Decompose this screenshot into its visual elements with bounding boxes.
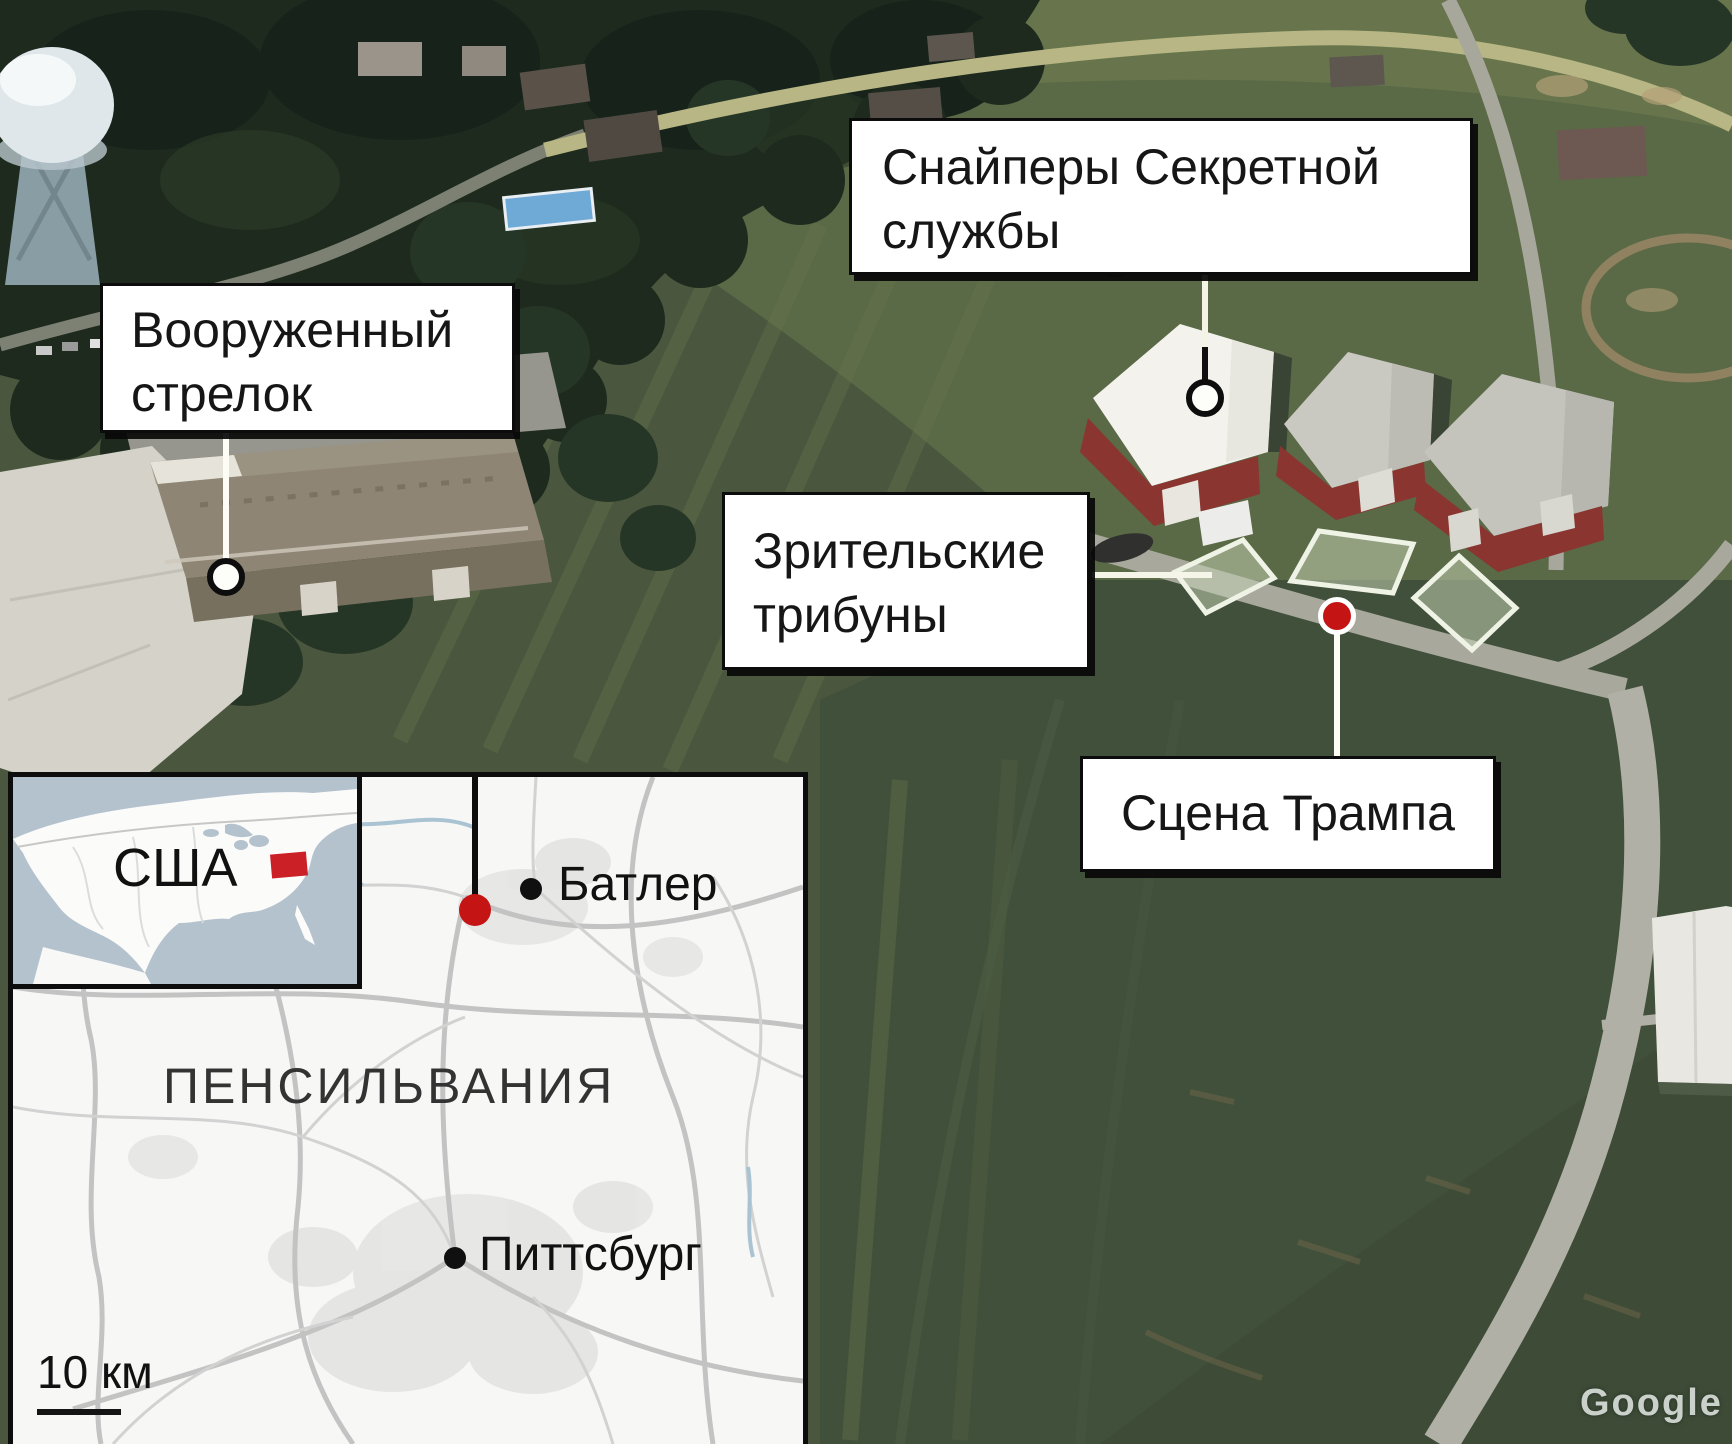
shooter-label: Вооруженный стрелок: [100, 283, 515, 433]
butler-label: Батлер: [558, 857, 717, 912]
scale-bar: [37, 1409, 121, 1415]
snipers-label-line1: Снайперы Секретной: [882, 135, 1470, 199]
stands-label-line1: Зрительские: [753, 519, 1087, 583]
stands-label: Зрительские трибуны: [722, 492, 1090, 670]
snipers-connector-lower: [1202, 347, 1208, 381]
butler-dot: [520, 878, 542, 900]
stands-label-line2: трибуны: [753, 583, 1087, 647]
stands-connector: [1092, 572, 1212, 578]
white-building-right: [1652, 906, 1732, 1096]
shooter-label-line2: стрелок: [131, 362, 512, 426]
shooter-connector: [223, 432, 229, 560]
pennsylvania-highlight: [270, 851, 308, 878]
inset-map-pennsylvania: США Батлер ПЕНСИЛЬВАНИЯ Питтсбург 10 км: [8, 772, 808, 1444]
stage-marker: [1318, 597, 1356, 635]
shooter-marker: [207, 558, 245, 596]
scale-label: 10 км: [37, 1345, 153, 1399]
state-label: ПЕНСИЛЬВАНИЯ: [163, 1057, 615, 1115]
snipers-marker: [1186, 379, 1224, 417]
snipers-label: Снайперы Секретной службы: [849, 118, 1473, 275]
annotated-aerial-graphic: Снайперы Секретной службы Вооруженный ст…: [0, 0, 1732, 1444]
inset-site-dot: [459, 894, 491, 926]
google-watermark: Google: [1580, 1382, 1723, 1425]
stage-label: Сцена Трампа: [1080, 756, 1496, 872]
usa-label: США: [113, 837, 238, 899]
stage-connector: [1334, 633, 1340, 757]
pittsburgh-label: Питтсбург: [479, 1227, 702, 1282]
shooter-label-line1: Вооруженный: [131, 298, 512, 362]
snipers-connector-upper: [1202, 275, 1208, 347]
inset-map-usa: США: [13, 777, 362, 989]
stage-label-text: Сцена Трампа: [1083, 781, 1493, 845]
snipers-label-line2: службы: [882, 199, 1470, 263]
pittsburgh-dot: [444, 1247, 466, 1269]
